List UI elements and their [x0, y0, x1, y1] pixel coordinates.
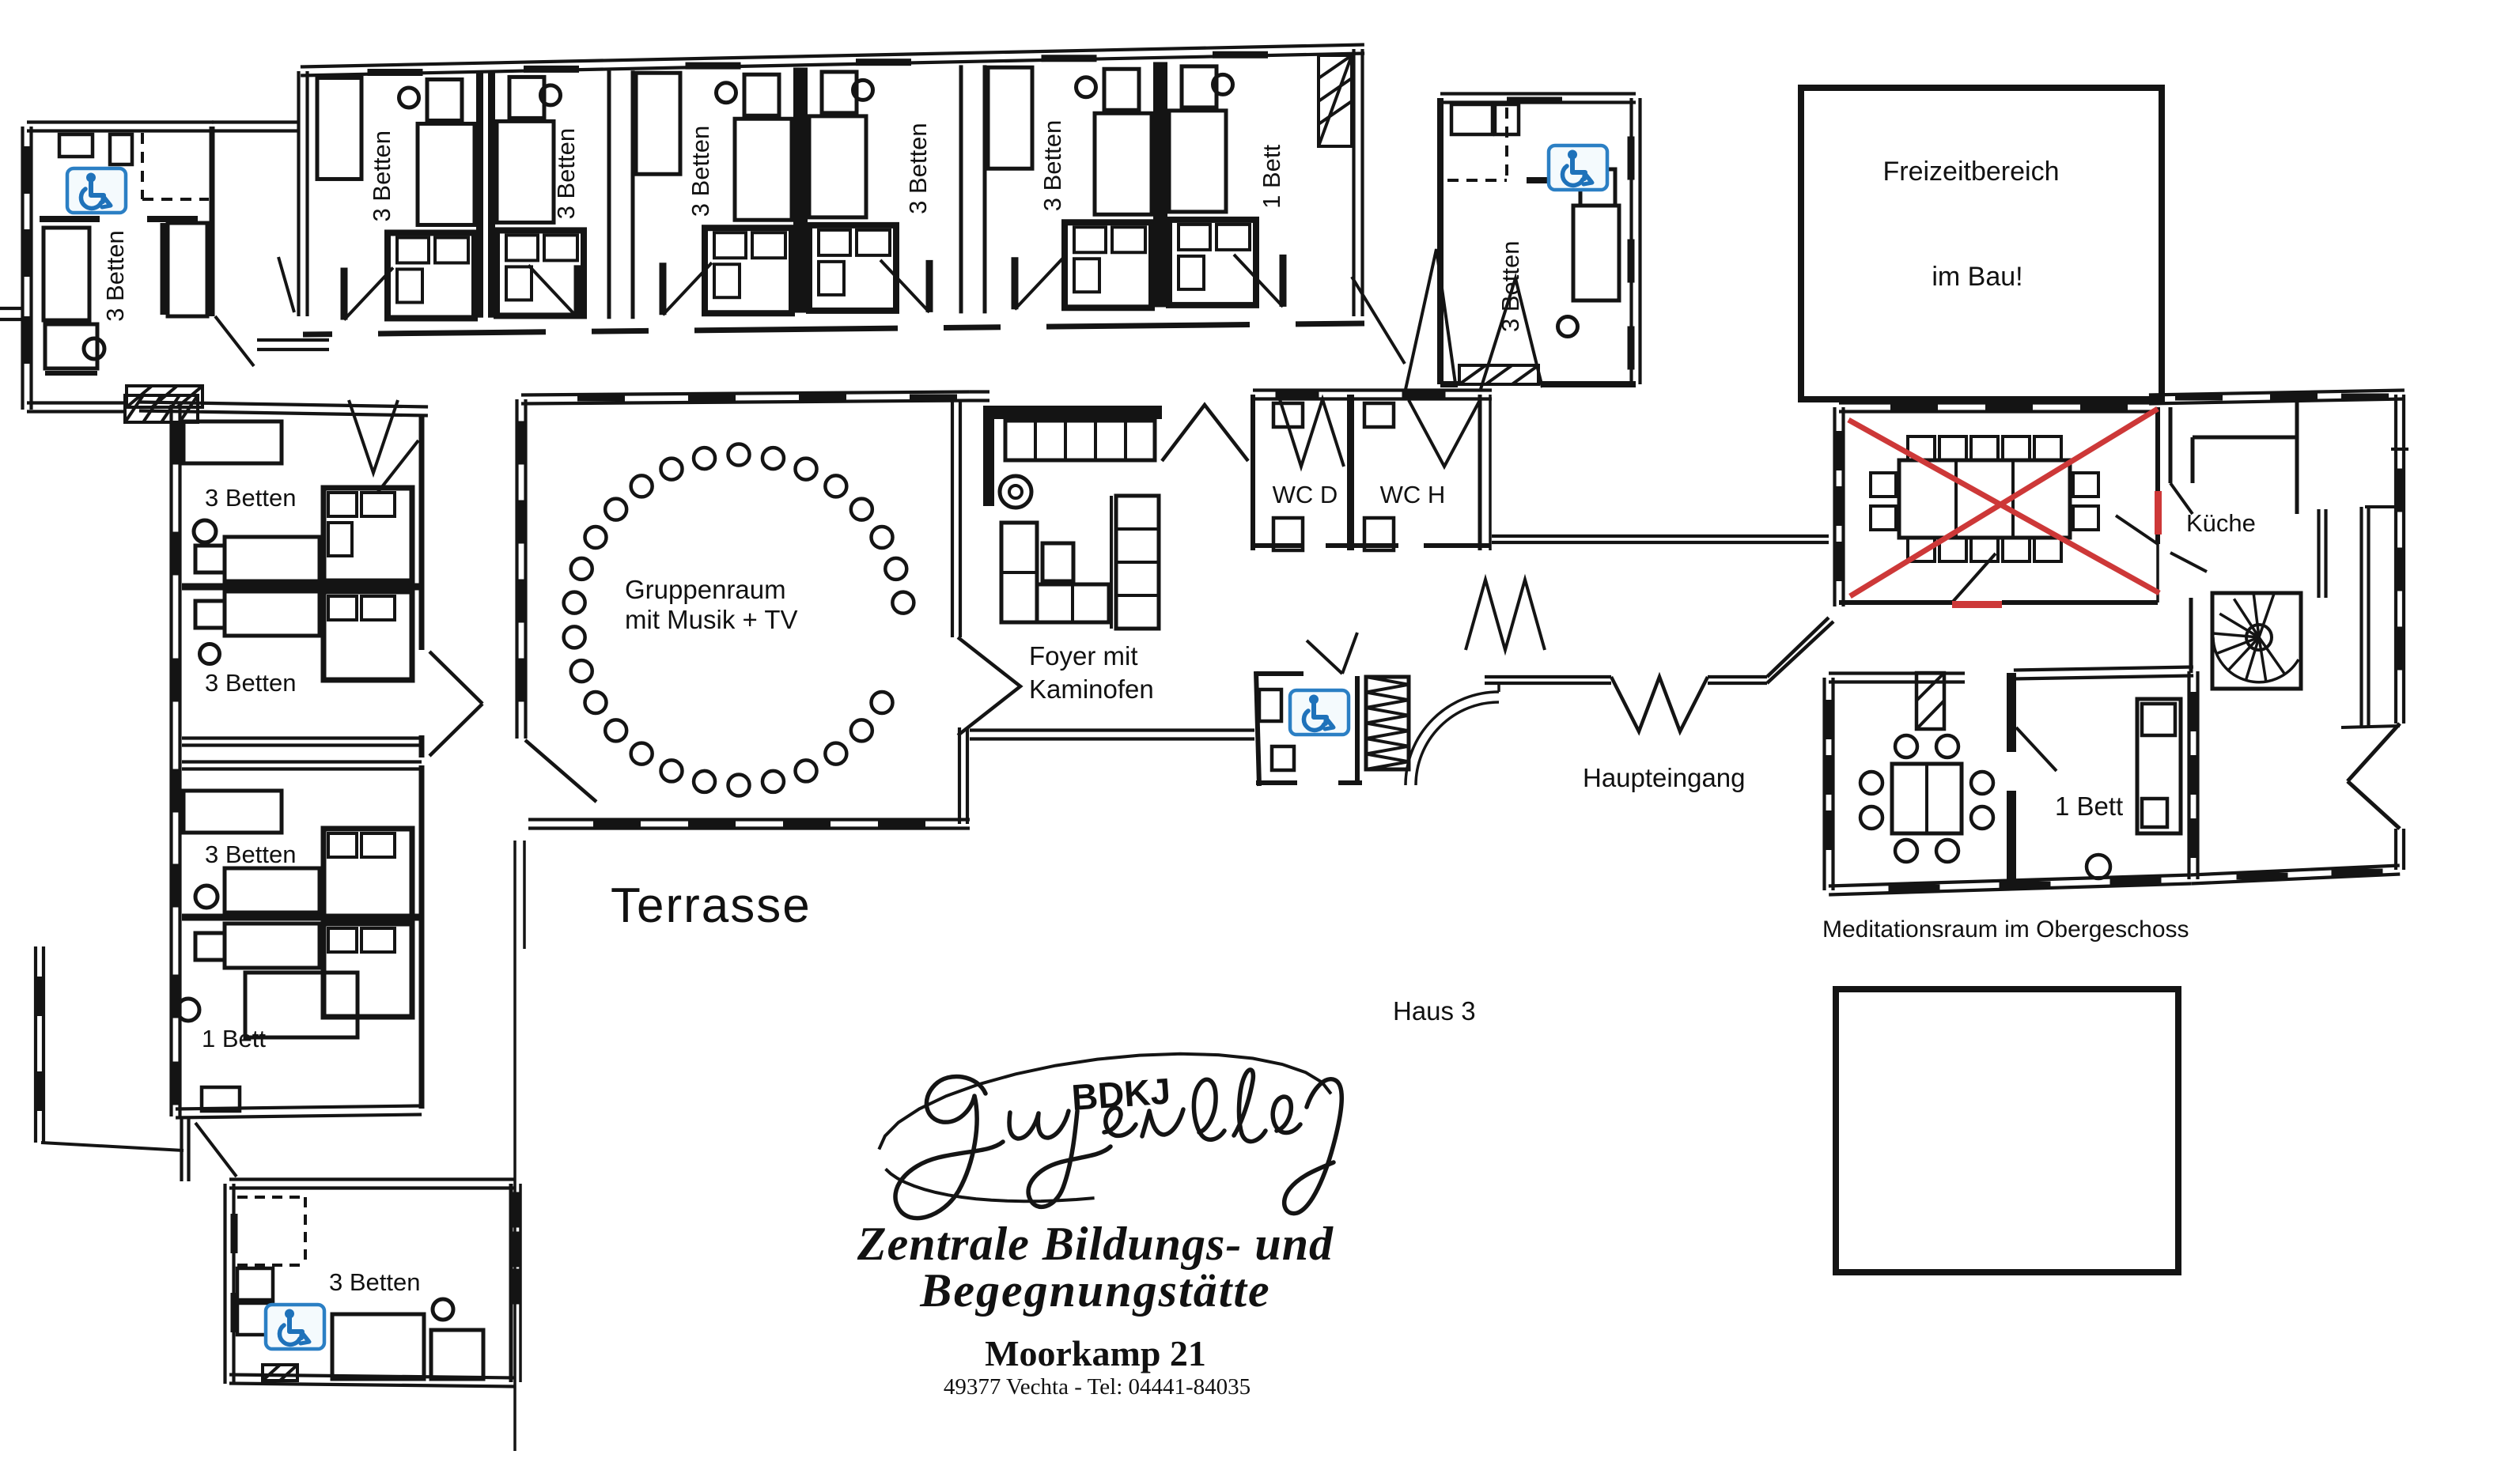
svg-text:Foyer mit: Foyer mit — [1029, 641, 1138, 671]
svg-text:1 Bett: 1 Bett — [2055, 792, 2123, 821]
svg-text:3 Betten: 3 Betten — [205, 841, 296, 868]
svg-text:1 Bett: 1 Bett — [1258, 145, 1285, 209]
svg-text:Haupteingang: Haupteingang — [1583, 763, 1746, 792]
svg-text:Kaminofen: Kaminofen — [1029, 674, 1154, 704]
svg-text:3 Betten: 3 Betten — [329, 1268, 420, 1296]
svg-text:WC D: WC D — [1273, 481, 1338, 508]
svg-text:Haus 3: Haus 3 — [1393, 996, 1476, 1026]
svg-text:Freizeitbereich: Freizeitbereich — [1883, 157, 2060, 187]
svg-text:Begegnungstätte: Begegnungstätte — [919, 1264, 1270, 1317]
svg-text:49377 Vechta - Tel: 04441-84: 49377 Vechta - Tel: 04441-84035 — [944, 1374, 1251, 1400]
svg-text:3 Betten: 3 Betten — [904, 123, 932, 213]
svg-text:Gruppenraum: Gruppenraum — [625, 575, 786, 604]
svg-text:Küche: Küche — [2186, 509, 2256, 537]
svg-text:Terrasse: Terrasse — [611, 878, 812, 933]
svg-text:3 Betten: 3 Betten — [205, 484, 296, 512]
svg-text:3 Betten: 3 Betten — [1039, 120, 1066, 211]
svg-text:Meditationsraum im Obergeschos: Meditationsraum im Obergeschoss — [1822, 916, 2189, 943]
svg-text:WC H: WC H — [1380, 481, 1446, 508]
svg-text:3 Betten: 3 Betten — [687, 126, 714, 217]
svg-text:Moorkamp 21: Moorkamp 21 — [985, 1333, 1206, 1373]
svg-text:3 Betten: 3 Betten — [368, 130, 395, 221]
svg-text:3 Betten: 3 Betten — [552, 128, 580, 219]
svg-text:3 Betten: 3 Betten — [1496, 241, 1524, 332]
svg-text:mit Musik + TV: mit Musik + TV — [625, 605, 798, 634]
svg-text:3 Betten: 3 Betten — [101, 230, 129, 321]
svg-text:im Bau!: im Bau! — [1932, 262, 2022, 292]
svg-text:3 Betten: 3 Betten — [205, 669, 296, 697]
svg-text:Zentrale Bildungs- und: Zentrale Bildungs- und — [857, 1218, 1334, 1270]
